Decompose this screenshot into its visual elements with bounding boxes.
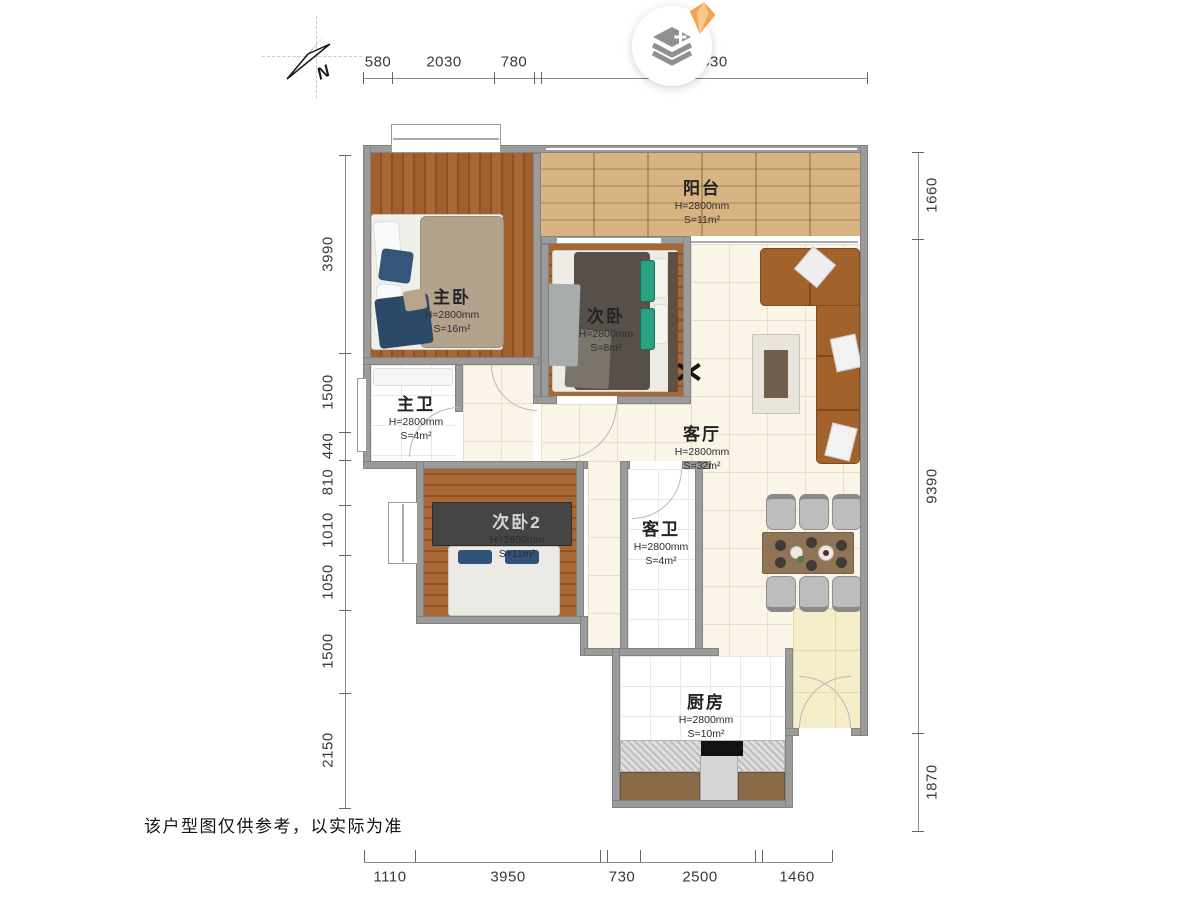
cooktop bbox=[701, 741, 743, 756]
dim-value: 1110 bbox=[373, 869, 406, 886]
room-height: H=2800mm bbox=[634, 541, 689, 555]
dim-value: 580 bbox=[365, 54, 392, 71]
wall bbox=[584, 648, 719, 656]
window-master-bath bbox=[357, 378, 367, 452]
dining-chair bbox=[766, 494, 796, 530]
room-label-master-bedroom: 主卧 H=2800mm S=16m² bbox=[425, 287, 480, 336]
north-arrow-icon: N bbox=[272, 14, 350, 92]
room-label-bedroom: 次卧 H=2800mm S=8m² bbox=[579, 306, 634, 355]
wall bbox=[363, 357, 539, 365]
tick bbox=[339, 808, 351, 809]
tick bbox=[912, 831, 924, 832]
tick bbox=[912, 152, 924, 153]
plate bbox=[806, 560, 817, 571]
tick bbox=[867, 72, 868, 84]
room-area: S=4m² bbox=[634, 555, 689, 569]
tick bbox=[392, 72, 393, 84]
plate bbox=[836, 557, 847, 568]
tick bbox=[755, 850, 756, 862]
flower-leaf bbox=[797, 556, 804, 563]
plate bbox=[775, 557, 786, 568]
floor-corridor bbox=[588, 461, 620, 656]
room-height: H=2800mm bbox=[389, 416, 444, 430]
wall bbox=[612, 648, 620, 808]
wall bbox=[860, 145, 868, 736]
room-name: 厨房 bbox=[679, 692, 734, 714]
dim-value: 1500 bbox=[320, 374, 337, 409]
room-area: S=16m² bbox=[425, 323, 480, 337]
room-area: S=11m² bbox=[675, 214, 730, 228]
dim-value: 1870 bbox=[924, 764, 941, 799]
room-name: 次卧2 bbox=[490, 512, 545, 534]
tick bbox=[339, 555, 351, 556]
tick bbox=[607, 850, 608, 862]
dim-value: 810 bbox=[320, 469, 337, 496]
room-height: H=2800mm bbox=[675, 446, 730, 460]
wall bbox=[620, 461, 628, 656]
room-height: H=2800mm bbox=[679, 714, 734, 728]
wall bbox=[455, 365, 463, 412]
fridge bbox=[700, 755, 738, 802]
window-balcony-bottom bbox=[556, 237, 662, 244]
bathtub bbox=[373, 368, 453, 386]
room-name: 客厅 bbox=[675, 424, 730, 446]
pillow bbox=[654, 258, 668, 298]
tick bbox=[339, 432, 351, 433]
tick bbox=[363, 72, 364, 84]
dim-value: 1500 bbox=[320, 633, 337, 668]
room-label-master-bath: 主卫 H=2800mm S=4m² bbox=[389, 394, 444, 443]
room-label-guest-bath: 客卫 H=2800mm S=4m² bbox=[634, 519, 689, 568]
tick bbox=[541, 72, 542, 84]
kitchen-cabinet bbox=[620, 772, 700, 802]
window-mullion bbox=[393, 138, 499, 140]
gem-icon bbox=[686, 0, 718, 36]
floor-plan-page: 阳台 H=2800mm S=11m² 主卧 H=2800mm S=16m² 次卧… bbox=[0, 0, 1200, 900]
dim-line-left bbox=[345, 155, 346, 808]
dining-chair bbox=[832, 494, 862, 530]
north-label: N bbox=[314, 61, 334, 84]
dim-value: 3990 bbox=[320, 236, 337, 271]
dim-value: 1660 bbox=[924, 177, 941, 212]
dim-value: 1050 bbox=[320, 564, 337, 599]
tick bbox=[640, 850, 641, 862]
dim-value: 2150 bbox=[320, 732, 337, 767]
dining-chair bbox=[799, 576, 829, 612]
room-height: H=2800mm bbox=[425, 309, 480, 323]
rug bbox=[544, 283, 581, 366]
wall bbox=[541, 244, 549, 404]
tick bbox=[339, 693, 351, 694]
wall bbox=[363, 461, 588, 469]
tick bbox=[339, 460, 351, 461]
dining-chair bbox=[766, 576, 796, 612]
wall bbox=[683, 236, 691, 404]
plate bbox=[806, 537, 817, 548]
plate bbox=[836, 540, 847, 551]
tick bbox=[364, 850, 365, 862]
wall bbox=[695, 461, 703, 656]
plate bbox=[775, 540, 786, 551]
dim-value: 2030 bbox=[426, 54, 461, 71]
room-area: S=4m² bbox=[389, 430, 444, 444]
coffee-table-top bbox=[764, 350, 788, 398]
room-area: S=10m² bbox=[679, 728, 734, 742]
dim-line-right bbox=[918, 152, 919, 831]
green-pillow bbox=[640, 308, 655, 350]
room-label-kitchen: 厨房 H=2800mm S=10m² bbox=[679, 692, 734, 741]
dim-value: 9390 bbox=[924, 468, 941, 503]
dim-line-bottom bbox=[364, 862, 832, 863]
balcony-threshold bbox=[691, 241, 858, 243]
pillow bbox=[654, 304, 668, 344]
wall bbox=[576, 461, 584, 624]
dim-value: 1010 bbox=[320, 512, 337, 547]
blue-pillow bbox=[458, 550, 492, 564]
tick bbox=[339, 155, 351, 156]
wall bbox=[612, 800, 793, 808]
tick bbox=[912, 733, 924, 734]
room-label-balcony: 阳台 H=2800mm S=11m² bbox=[675, 178, 730, 227]
room-height: H=2800mm bbox=[675, 200, 730, 214]
room-area: S=32m² bbox=[675, 460, 730, 474]
tick bbox=[762, 850, 763, 862]
tick bbox=[832, 850, 833, 862]
dining-chair bbox=[832, 576, 862, 612]
room-label-living-room: 客厅 H=2800mm S=32m² bbox=[675, 424, 730, 473]
bed-headboard bbox=[668, 252, 678, 392]
fruit bbox=[823, 550, 829, 556]
dim-value: 2500 bbox=[682, 869, 717, 886]
green-pillow bbox=[640, 260, 655, 302]
room-name: 阳台 bbox=[675, 178, 730, 200]
room-area: S=8m² bbox=[579, 342, 634, 356]
room-name: 主卧 bbox=[425, 287, 480, 309]
dining-chair bbox=[799, 494, 829, 530]
room-area: S=11m² bbox=[490, 548, 545, 562]
tick bbox=[415, 850, 416, 862]
dim-value: 3950 bbox=[490, 869, 525, 886]
wall bbox=[416, 616, 584, 624]
window-balcony-top bbox=[545, 147, 858, 151]
room-name: 次卧 bbox=[579, 306, 634, 328]
tick bbox=[600, 850, 601, 862]
tick bbox=[494, 72, 495, 84]
wall bbox=[785, 728, 799, 736]
wall bbox=[617, 396, 691, 404]
kitchen-cabinet bbox=[738, 772, 785, 802]
room-name: 主卫 bbox=[389, 394, 444, 416]
throw-blanket bbox=[378, 248, 414, 284]
tick bbox=[534, 72, 535, 84]
room-name: 客卫 bbox=[634, 519, 689, 541]
room-height: H=2800mm bbox=[490, 534, 545, 548]
dim-value: 780 bbox=[501, 54, 528, 71]
dim-line-top bbox=[363, 78, 867, 79]
room-label-bedroom2: 次卧2 H=2800mm S=11m² bbox=[490, 512, 545, 561]
tick bbox=[339, 610, 351, 611]
room-height: H=2800mm bbox=[579, 328, 634, 342]
window-mullion bbox=[402, 504, 404, 562]
dim-value: 1460 bbox=[779, 869, 814, 886]
tick bbox=[339, 505, 351, 506]
tick bbox=[339, 353, 351, 354]
dim-value: 730 bbox=[609, 869, 636, 886]
dim-value: 440 bbox=[320, 433, 337, 460]
disclaimer-text: 该户型图仅供参考，以实际为准 bbox=[144, 812, 403, 837]
tick bbox=[912, 239, 924, 240]
